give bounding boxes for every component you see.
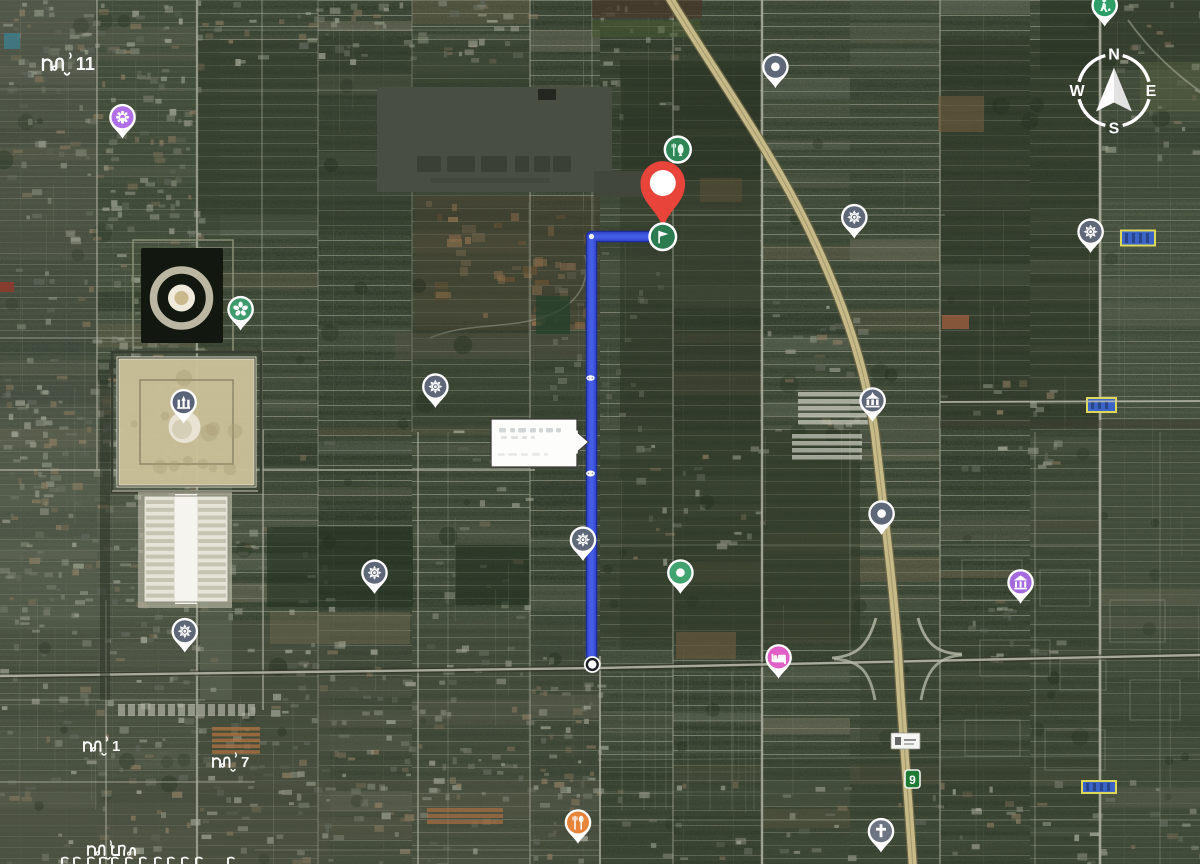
svg-text:N: N xyxy=(1108,47,1120,64)
svg-text:W: W xyxy=(1069,83,1085,100)
svg-text:9: 9 xyxy=(909,773,916,787)
svg-text:1: 1 xyxy=(112,738,120,755)
svg-text:S: S xyxy=(1109,121,1120,138)
svg-text:7: 7 xyxy=(241,754,249,771)
svg-text:11: 11 xyxy=(76,54,95,74)
svg-text:E: E xyxy=(1146,83,1157,100)
